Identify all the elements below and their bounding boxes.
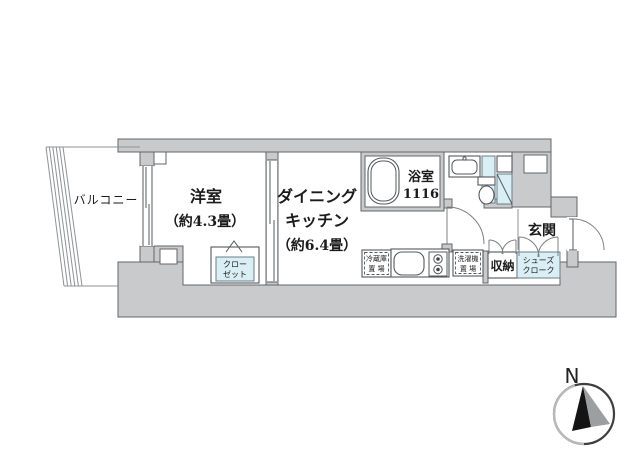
wall-stub-storage [483,251,488,283]
washer-space: 洗濯機 置 場 [453,250,483,276]
washer-label-1: 洗濯機 [458,254,479,263]
bathroom-label: 浴室 [408,169,434,185]
washer-label-2: 置 場 [460,264,476,273]
dining-kitchen-label-2: キッチン [285,211,349,230]
wall-notch-top-left [154,152,166,164]
dining-kitchen-size: （約6.4畳） [277,237,357,254]
cabinet-small-icon [497,156,512,172]
dining-kitchen-label-1: ダイニング [277,187,357,206]
wall-top [118,139,551,152]
bathtub-icon [368,158,399,204]
closet-label-2: ゼット [223,269,247,279]
wall-notch-left-step [160,249,177,264]
bathroom-size: 1116 [403,187,439,202]
kitchen-sink-icon [394,252,424,275]
mirror-cabinet-icon [497,174,512,204]
wall-left-upper [140,152,154,166]
wall-notch-meter-box [524,155,547,173]
western-room: 洋室 （約4.3畳） [165,187,245,230]
toilet-icon [478,177,495,204]
wall-entrance-bottom [567,250,578,267]
refrigerator-space: 冷蔵庫 置 場 [362,250,391,277]
closet-label-1: クロー [223,260,247,269]
balcony-window [140,166,154,246]
shoe-closet: シューズ クローク [517,237,560,278]
entrance-label: 玄関 [528,222,556,239]
room-divider-sliding-door [267,160,277,282]
kitchen: 冷蔵庫 置 場 洗濯機 置 場 [362,249,483,277]
corridor-door [447,207,484,244]
refrigerator-label-1: 冷蔵庫 [366,254,387,263]
shoe-closet-label-2: クローク [523,266,555,275]
washroom [449,156,512,204]
front-door [567,217,604,251]
wall-entrance-top [551,197,577,217]
dining-kitchen: ダイニング キッチン （約6.4畳） [277,187,357,254]
floorplan-drawing: バルコニー 洋室 （約4.3畳） ダイニング キッチン （約6.4畳） 浴室 1… [0,0,640,452]
storage-label: 収納 [490,258,514,273]
western-room-size: （約4.3畳） [165,213,245,230]
corridor-door-swing-arc [447,207,484,244]
floorplan-canvas: バルコニー 洋室 （約4.3畳） ダイニング キッチン （約6.4畳） 浴室 1… [0,0,640,452]
north-compass-icon: N [554,364,614,444]
balcony-label: バルコニー [74,193,139,207]
western-room-label: 洋室 [190,187,222,206]
storage-unit: 収納 [488,240,517,278]
refrigerator-label-2: 置 場 [368,264,384,273]
closet: クロー ゼット [211,241,259,283]
bathroom: 浴室 1116 [361,152,444,211]
